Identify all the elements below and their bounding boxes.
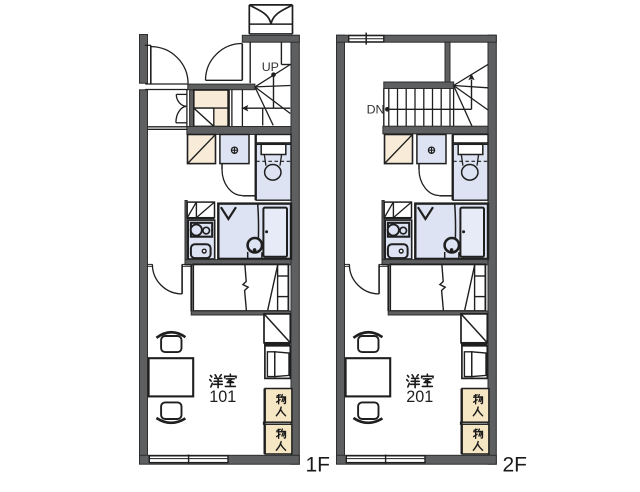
svg-text:DN: DN	[367, 103, 385, 117]
svg-text:201: 201	[406, 388, 433, 406]
svg-text:2F: 2F	[503, 454, 528, 477]
svg-text:1F: 1F	[306, 454, 331, 477]
svg-text:101: 101	[209, 388, 236, 406]
svg-text:UP: UP	[262, 60, 279, 74]
